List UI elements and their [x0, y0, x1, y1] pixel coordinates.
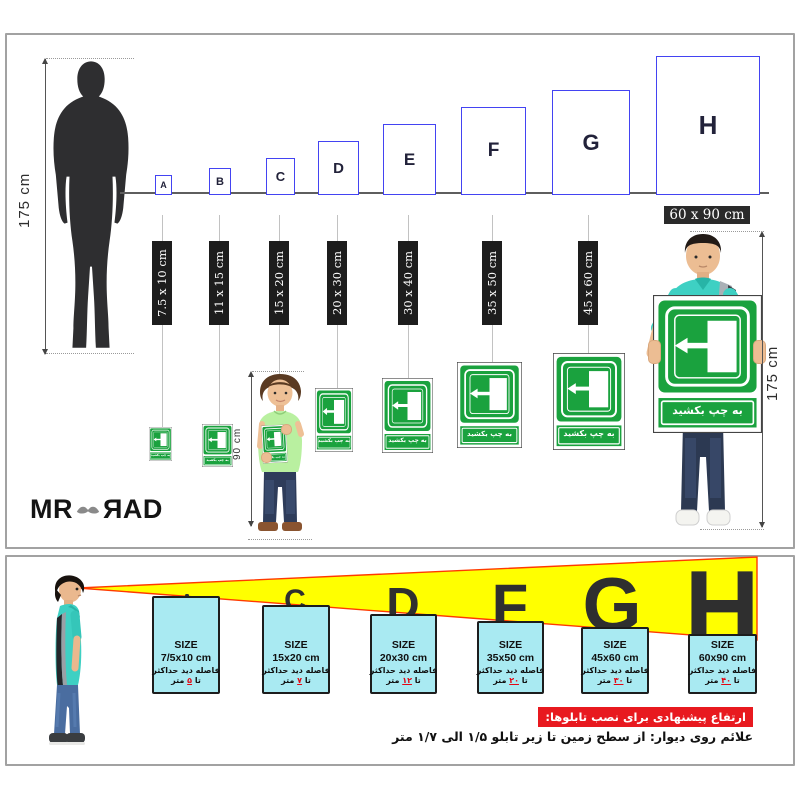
card-distance-label: فاصله دید حداکثر: [262, 666, 329, 675]
exit-sign-text: به چپ بکشید: [558, 425, 620, 442]
card-size-title: SIZE: [603, 639, 626, 651]
card-distance-label: فاصله دید حداکثر: [477, 666, 544, 675]
card-size-title: SIZE: [392, 639, 415, 651]
card-size-value: 7/5x10 cm: [161, 652, 211, 664]
exit-sign-e: به چپ بکشید: [382, 378, 433, 453]
exit-sign-g: به چپ بکشید: [553, 353, 625, 450]
card-distance-line: تا ۴۰ متر: [705, 676, 740, 685]
man-head-dotted: [690, 231, 764, 232]
card-distance-line: تا ۱۲ متر: [386, 676, 421, 685]
exit-sign-text: به چپ بکشید: [151, 452, 171, 458]
card-distance-line: تا ۵ متر: [171, 676, 201, 685]
child-hand-top: [281, 424, 292, 435]
size-tag-f: 35 x 50 cm: [482, 241, 502, 325]
card-distance-label: فاصله دید حداکثر: [370, 666, 437, 675]
child-hand-bottom: [261, 452, 272, 463]
distance-value: ۱۲: [402, 676, 412, 685]
size-box-g: G: [552, 90, 630, 195]
distance-value: ۴۰: [721, 676, 731, 685]
size-box-f: F: [461, 107, 526, 195]
card-size-title: SIZE: [284, 639, 307, 651]
size-tag-h: 60 x 90 cm: [664, 206, 750, 224]
recommendation-banner: ارتفاع پیشنهادی برای نصب تابلوها:: [538, 707, 753, 727]
child-feet-dotted: [248, 539, 312, 540]
size-box-b: B: [209, 168, 231, 195]
exit-sign-text: به چپ بکشید: [386, 434, 430, 448]
dim-arrow-bottom: [42, 349, 48, 355]
size-box-letter: F: [488, 140, 500, 162]
size-box-a: A: [155, 175, 172, 195]
distance-value: ۳۰: [614, 676, 624, 685]
brand-logo: MR ЯAD: [30, 494, 163, 525]
card-distance-line: تا ۳۰ متر: [598, 676, 633, 685]
side-man-figure: [44, 575, 90, 757]
size-box-c: C: [266, 158, 295, 195]
card-size-title: SIZE: [499, 639, 522, 651]
size-tag-d: 20 x 30 cm: [327, 241, 347, 325]
size-card-a: SIZE 7/5x10 cm فاصله دید حداکثر تا ۵ متر: [152, 596, 220, 694]
man-hand-left: [648, 340, 661, 364]
exit-sign-text: به چپ بکشید: [462, 426, 518, 441]
card-size-title: SIZE: [711, 639, 734, 651]
size-card-c: SIZE 15x20 cm فاصله دید حداکثر تا ۷ متر: [262, 605, 330, 694]
human-silhouette: [48, 57, 134, 355]
size-card-h: SIZE 60x90 cm فاصله دید حداکثر تا ۴۰ متر: [688, 634, 757, 694]
card-size-title: SIZE: [174, 639, 197, 651]
feet-dotted-line: [46, 353, 134, 354]
card-size-value: 35x50 cm: [487, 652, 534, 664]
size-tag-b: 11 x 15 cm: [209, 241, 229, 325]
head-dotted-line: [46, 58, 134, 59]
child-dim-line: [251, 373, 252, 526]
card-size-value: 60x90 cm: [699, 652, 746, 664]
logo-left-text: MR: [30, 494, 73, 525]
child-height-label: 90 cm: [232, 422, 243, 466]
card-distance-label: فاصله دید حداکثر: [581, 666, 648, 675]
distance-value: ۲۰: [509, 676, 519, 685]
size-card-g: SIZE 45x60 cm فاصله دید حداکثر تا ۳۰ متر: [581, 627, 649, 694]
exit-sign-text: به چپ بکشید: [204, 456, 231, 464]
man-dim-arrow-bottom: [759, 522, 765, 528]
man-height-label: 175 cm: [764, 334, 781, 412]
exit-sign-text: به چپ بکشید: [661, 398, 755, 423]
size-box-letter: D: [333, 160, 344, 177]
size-box-letter: G: [582, 130, 599, 156]
distance-value: ۷: [297, 676, 302, 685]
size-box-d: D: [318, 141, 359, 195]
card-size-value: 15x20 cm: [272, 652, 319, 664]
silhouette-height-label: 175 cm: [16, 158, 33, 242]
exit-sign-a: به چپ بکشید: [149, 427, 172, 461]
size-tag-g: 45 x 60 cm: [578, 241, 598, 325]
exit-sign-b: به چپ بکشید: [202, 424, 233, 467]
size-tag-a: 7.5 x 10 cm: [152, 241, 172, 325]
exit-sign-h: به چپ بکشید: [653, 295, 762, 433]
card-distance-label: فاصله دید حداکثر: [689, 666, 756, 675]
size-box-letter: E: [404, 150, 415, 170]
child-dim-arrow-bottom: [248, 521, 254, 527]
size-box-letter: A: [160, 180, 167, 190]
size-box-letter: B: [216, 176, 224, 188]
child-head-dotted: [252, 371, 304, 372]
size-box-letter: C: [276, 169, 285, 184]
distance-value: ۵: [187, 676, 192, 685]
silhouette-dim-line: [45, 59, 46, 354]
card-size-value: 45x60 cm: [591, 652, 638, 664]
logo-right-text: ЯAD: [103, 494, 163, 525]
card-distance-line: تا ۲۰ متر: [493, 676, 528, 685]
mustache-icon: [75, 503, 101, 516]
exit-sign-d: به چپ بکشید: [315, 388, 353, 452]
size-card-d: SIZE 20x30 cm فاصله دید حداکثر تا ۱۲ متر: [370, 614, 437, 694]
recommendation-text: علائم روی دیوار: از سطح زمین تا زیر تابل…: [392, 729, 753, 744]
card-size-value: 20x30 cm: [380, 652, 427, 664]
size-tag-c: 15 x 20 cm: [269, 241, 289, 325]
man-feet-dotted: [700, 529, 764, 530]
card-distance-label: فاصله دید حداکثر: [152, 666, 219, 675]
exit-sign-text: به چپ بکشید: [318, 436, 351, 448]
man-dim-line: [762, 233, 763, 527]
exit-sign-f: به چپ بکشید: [457, 362, 522, 448]
size-card-f: SIZE 35x50 cm فاصله دید حداکثر تا ۲۰ متر: [477, 621, 544, 694]
card-distance-line: تا ۷ متر: [281, 676, 311, 685]
size-box-letter: H: [699, 110, 718, 141]
size-tag-e: 30 x 40 cm: [398, 241, 418, 325]
size-box-h: H: [656, 56, 760, 195]
size-box-e: E: [383, 124, 436, 195]
